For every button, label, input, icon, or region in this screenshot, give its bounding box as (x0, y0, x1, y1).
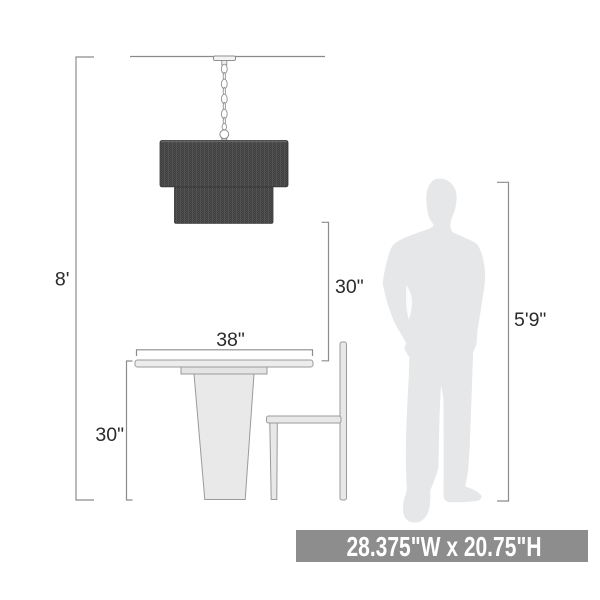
svg-text:30": 30" (95, 424, 124, 446)
svg-text:38": 38" (216, 329, 245, 351)
svg-text:28.375"W x 20.75"H: 28.375"W x 20.75"H (347, 531, 542, 562)
svg-text:5'9": 5'9" (514, 309, 546, 331)
svg-text:8': 8' (55, 269, 70, 291)
svg-text:30": 30" (335, 276, 364, 298)
